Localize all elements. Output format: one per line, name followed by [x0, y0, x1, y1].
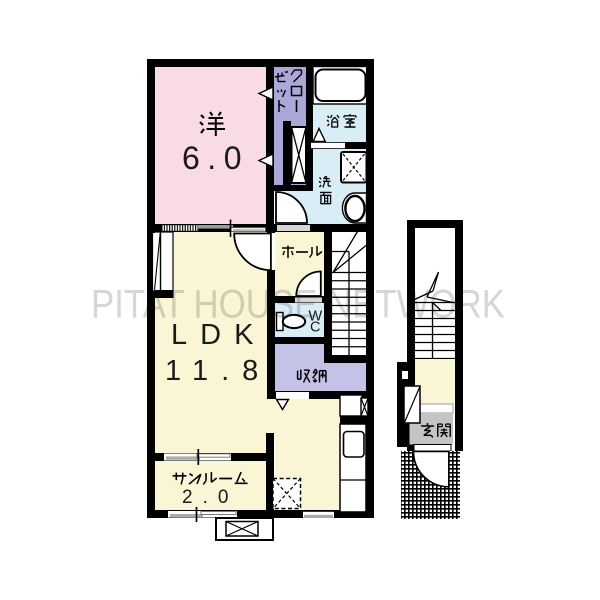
- svg-text:PITAT HOUSE NETWORK: PITAT HOUSE NETWORK: [91, 283, 505, 327]
- svg-text:11.8: 11.8: [165, 355, 271, 387]
- svg-text:2.0: 2.0: [182, 487, 238, 508]
- svg-text:6.0: 6.0: [182, 140, 249, 176]
